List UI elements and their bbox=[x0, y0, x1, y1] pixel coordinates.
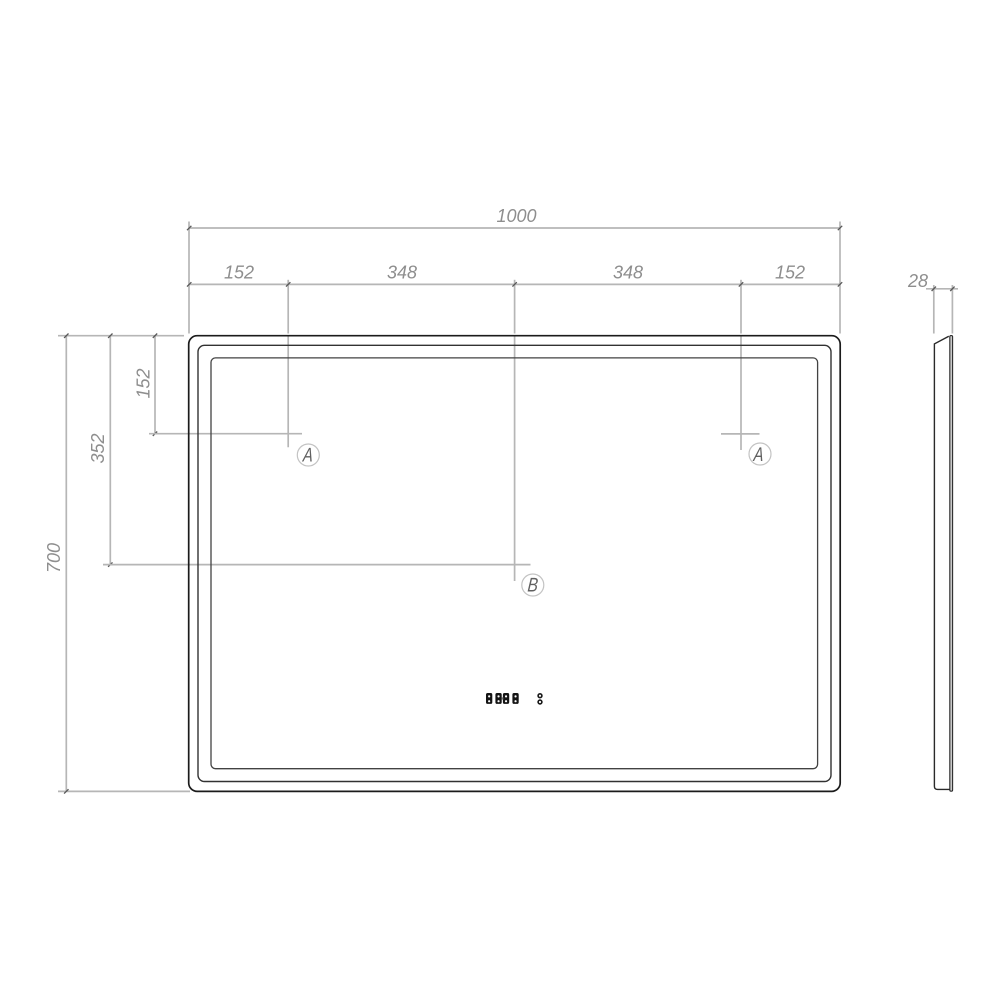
svg-text:A: A bbox=[752, 443, 765, 466]
svg-text:700: 700 bbox=[44, 543, 64, 573]
svg-text:152: 152 bbox=[224, 263, 254, 283]
svg-text:1000: 1000 bbox=[496, 206, 536, 226]
svg-text:28: 28 bbox=[907, 271, 928, 291]
svg-text:348: 348 bbox=[613, 263, 643, 283]
svg-text:152: 152 bbox=[134, 368, 154, 398]
svg-text:152: 152 bbox=[775, 263, 805, 283]
svg-text:A: A bbox=[301, 443, 314, 466]
svg-text:348: 348 bbox=[387, 263, 417, 283]
svg-text:352: 352 bbox=[88, 433, 108, 463]
svg-text:B: B bbox=[527, 574, 539, 596]
